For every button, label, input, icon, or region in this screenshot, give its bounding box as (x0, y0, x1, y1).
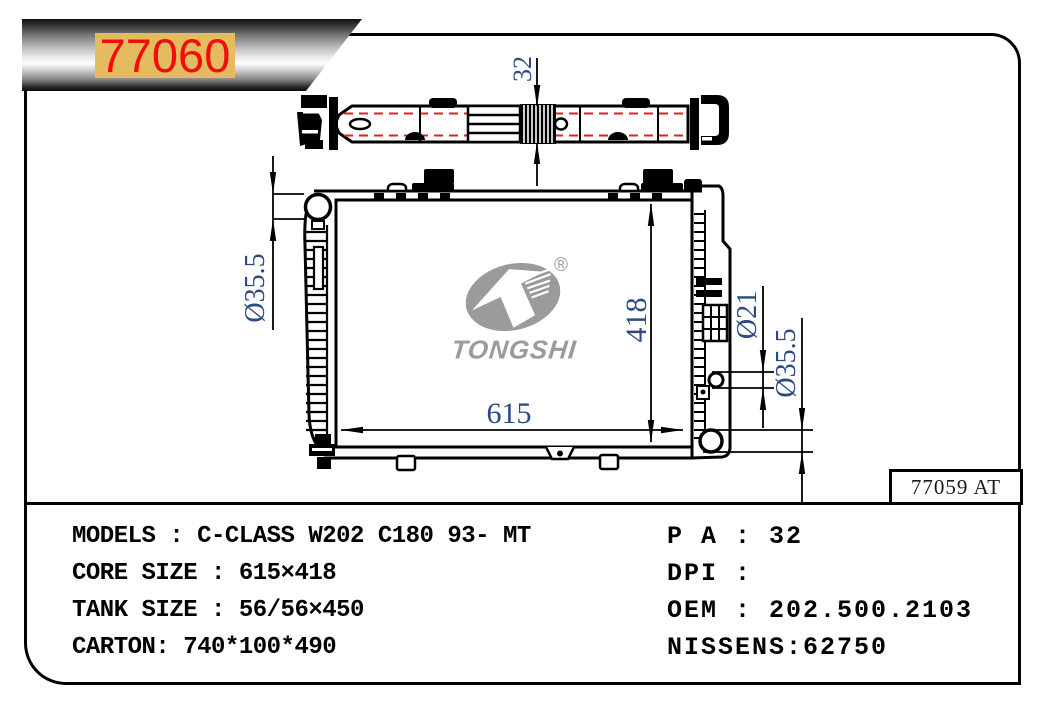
drawing-ref-label: 77059 AT (911, 475, 1001, 500)
dim-inlet-label: Ø35.5 (240, 253, 272, 322)
spec-line-tank-size: TANK SIZE : 56/56×450 (72, 592, 531, 629)
part-number-badge: 77060 (22, 19, 362, 91)
right-end-fitting (690, 95, 729, 150)
bottom-foot (600, 455, 618, 469)
spec-line-nissens: NISSENS:62750 (667, 629, 973, 666)
spec-line-carton: CARTON: 740*100*490 (72, 629, 531, 666)
brand-name: TONGSHI (450, 335, 578, 366)
inlet-port (306, 195, 331, 220)
tank-tab (622, 98, 650, 108)
dim-core-width-label: 615 (487, 397, 532, 431)
dim-port-label: Ø21 (732, 291, 764, 339)
tank-tab (429, 98, 457, 108)
dim-outlet-label: Ø35.5 (771, 328, 803, 397)
bottom-foot (397, 456, 415, 470)
registered-trademark-icon: ® (554, 255, 568, 277)
spec-line-dpi: DPI : (667, 555, 973, 592)
left-end-fitting (297, 95, 338, 150)
datasheet-page: 32 418 615 Ø35.5 Ø21 Ø35.5 ® TONGSHI 770… (0, 0, 1040, 707)
top-connectors (412, 169, 702, 192)
left-tank (305, 195, 335, 470)
outlet-port (700, 430, 722, 452)
spec-line-oem: OEM : 202.500.2103 (667, 592, 973, 629)
spec-line-core-size: CORE SIZE : 615×418 (72, 555, 531, 592)
section-divider (24, 502, 1021, 505)
coil-section (520, 104, 556, 144)
part-number-text: 77060 (100, 33, 231, 78)
dim-tank-depth-label: 32 (508, 56, 538, 82)
small-port (709, 373, 723, 387)
part-number-plate: 77060 (95, 33, 235, 78)
drawing-ref-box: 77059 AT (889, 469, 1023, 505)
dim-inlet-lines (270, 156, 304, 330)
dim-core-height-label: 418 (620, 298, 654, 343)
spec-column-left: MODELS : C-CLASS W202 C180 93- MT CORE S… (72, 518, 531, 666)
spec-line-pa: P A : 32 (667, 518, 973, 555)
spec-column-right: P A : 32 DPI : OEM : 202.500.2103 NISSEN… (667, 518, 973, 666)
spec-line-models: MODELS : C-CLASS W202 C180 93- MT (72, 518, 531, 555)
